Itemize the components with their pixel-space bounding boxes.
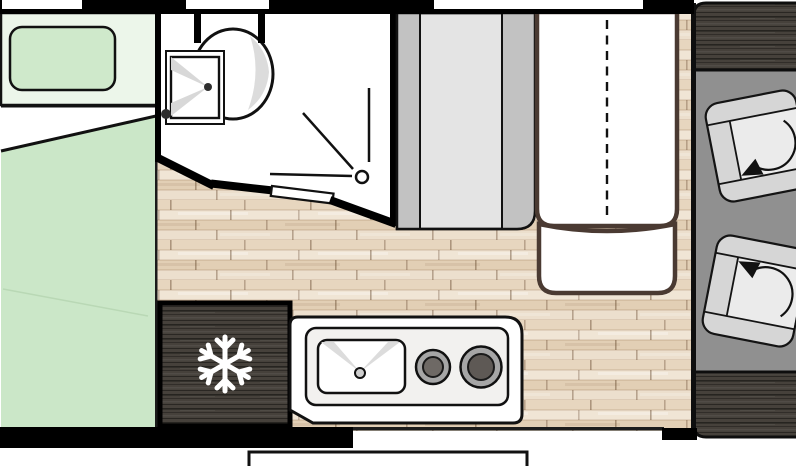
cab-bottom-panel <box>694 372 796 437</box>
wall-bottom-left <box>0 427 353 448</box>
window-frame-stub <box>258 13 265 43</box>
toilet-hinge-dot <box>204 83 212 91</box>
entry-step <box>249 452 527 466</box>
double-bed <box>1 117 157 427</box>
cab-area <box>691 3 796 440</box>
window-rear <box>2 0 82 9</box>
sink-drain <box>355 368 365 378</box>
window-bathroom <box>186 0 269 9</box>
floor-plan-drawing <box>0 0 796 466</box>
side-seat <box>539 224 675 293</box>
rear-bed-area <box>1 13 158 427</box>
wall-bottom-stub <box>662 428 697 440</box>
toilet-hinge-dot <box>161 109 171 119</box>
cab-top-panel <box>694 3 796 70</box>
window-dinette <box>434 0 643 9</box>
entry-doorway-floor-edge <box>353 427 664 431</box>
bathroom-wall-left <box>155 13 161 162</box>
floor-plan-canvas <box>0 0 796 466</box>
cab-partition-wall <box>691 3 696 440</box>
kitchen <box>160 303 522 426</box>
pillow <box>10 27 115 90</box>
window-frame-stub <box>194 13 201 43</box>
